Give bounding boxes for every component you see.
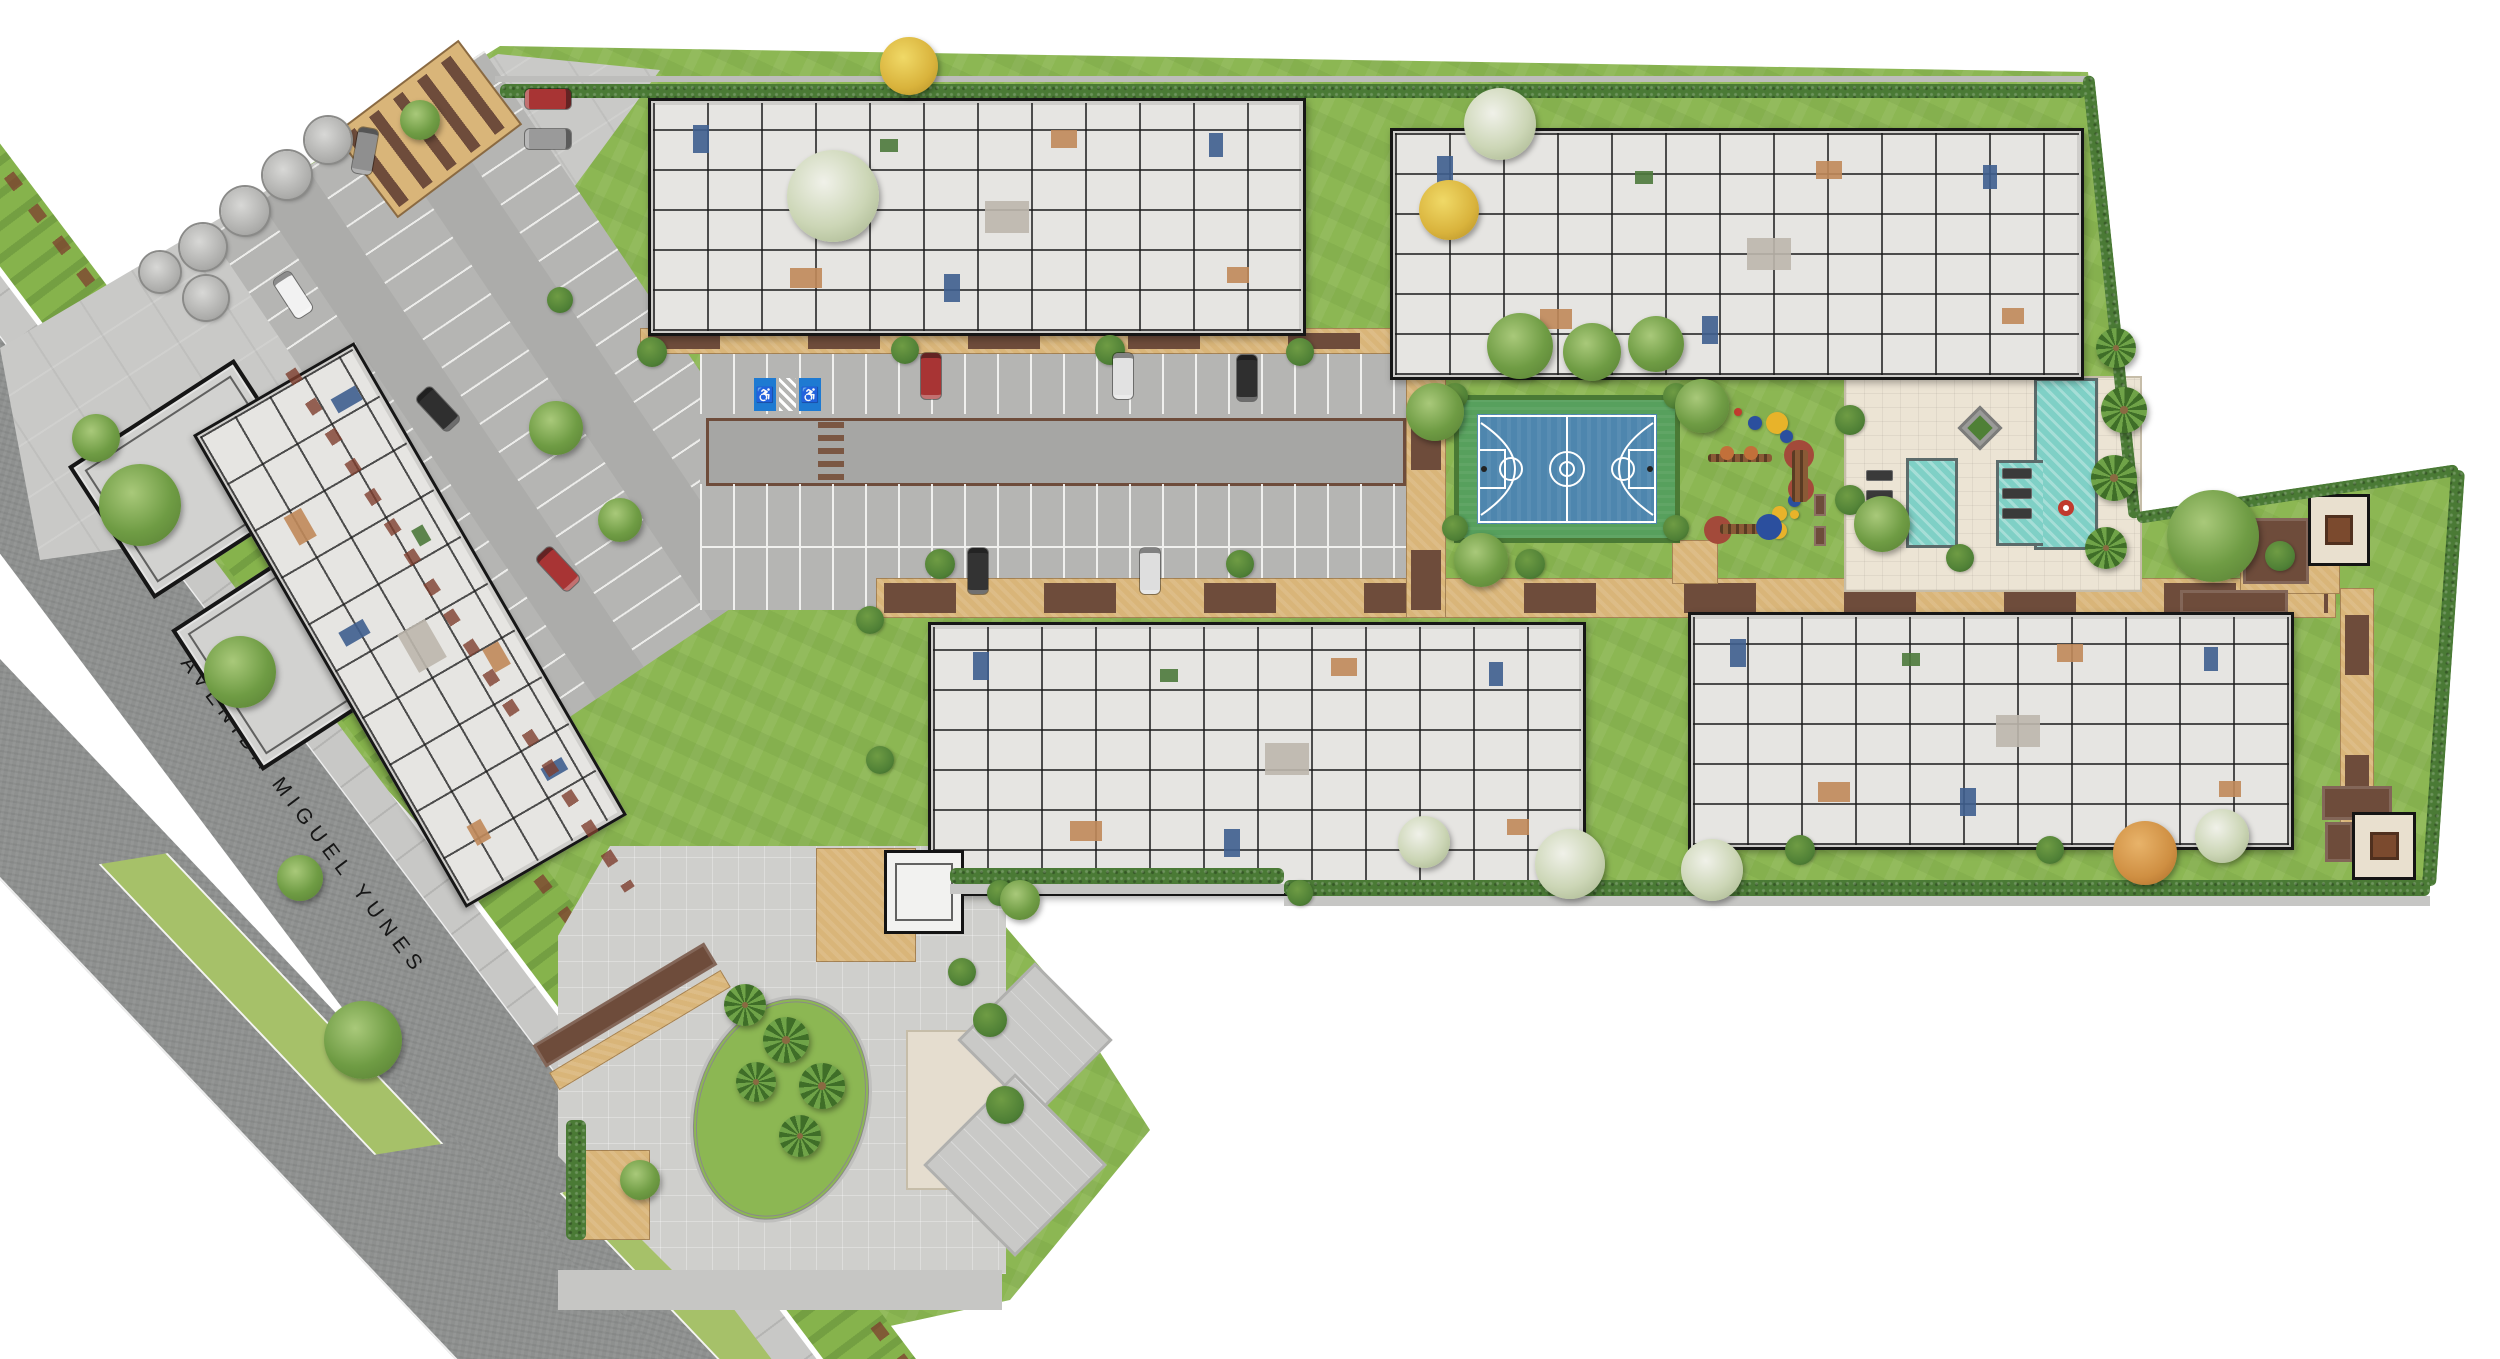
basketball-hoop	[1481, 466, 1487, 472]
spring-toy	[1756, 514, 1782, 540]
seesaw	[1708, 454, 1772, 462]
building-b-floorplan	[1390, 128, 2084, 380]
building-d-floorplan	[928, 622, 1586, 896]
basketball-hoop	[1647, 466, 1653, 472]
south-hedge-west	[950, 868, 1284, 884]
main-pool	[2034, 378, 2098, 550]
seesaw-seat	[1744, 446, 1758, 460]
play-dot	[1748, 416, 1762, 430]
parking-lot-main: ♿ ♿	[700, 348, 1406, 610]
wheelchair-icon: ♿	[756, 386, 775, 404]
play-dot	[1734, 408, 1742, 416]
north-boundary-wall	[495, 76, 2089, 82]
wet-deck-lounger	[2002, 488, 2032, 499]
climber-ladder	[1792, 450, 1808, 502]
bench	[1814, 526, 1826, 546]
site-plan: AVENIDA MIGUEL YUNES ♿ ♿	[0, 0, 2500, 1359]
bench	[1814, 494, 1826, 516]
south-hedge-east	[1284, 880, 2430, 896]
crosswalk	[818, 418, 844, 480]
sun-lounger	[1866, 510, 1893, 521]
court-surface	[1477, 414, 1657, 524]
sun-lounger	[1866, 470, 1893, 481]
accessible-hatch-zone	[779, 378, 796, 411]
accessible-parking-stall: ♿	[754, 378, 776, 411]
court-markings	[1477, 414, 1657, 524]
seesaw-seat	[1720, 446, 1734, 460]
bbq-gazebo-north	[2308, 494, 2370, 566]
parking-drive-aisle	[706, 418, 1406, 486]
kids-pool	[1906, 458, 1958, 548]
wet-deck-lounger	[2002, 508, 2032, 519]
south-walk-east	[1284, 896, 2430, 906]
building-a-floorplan	[648, 98, 1306, 336]
sun-lounger	[1866, 490, 1893, 501]
play-dot	[1790, 510, 1799, 519]
stall-divider-line	[700, 546, 1406, 548]
pergola-patio	[2243, 518, 2309, 584]
bbq-gazebo-south	[2352, 812, 2416, 880]
basketball-court	[1459, 400, 1675, 538]
lifebuoy	[2058, 500, 2074, 516]
wheelchair-icon: ♿	[801, 386, 820, 404]
plaza-west-hedge	[566, 1120, 586, 1240]
south-sidewalk	[558, 1270, 1002, 1310]
north-hedge	[500, 84, 2086, 98]
pergola-patio	[2325, 822, 2353, 862]
wet-deck-lounger	[2002, 468, 2032, 479]
building-e-floorplan	[1688, 612, 2294, 850]
pergola-patio	[2180, 590, 2288, 614]
south-walk-west	[950, 884, 1284, 894]
accessible-parking-stall: ♿	[799, 378, 821, 411]
